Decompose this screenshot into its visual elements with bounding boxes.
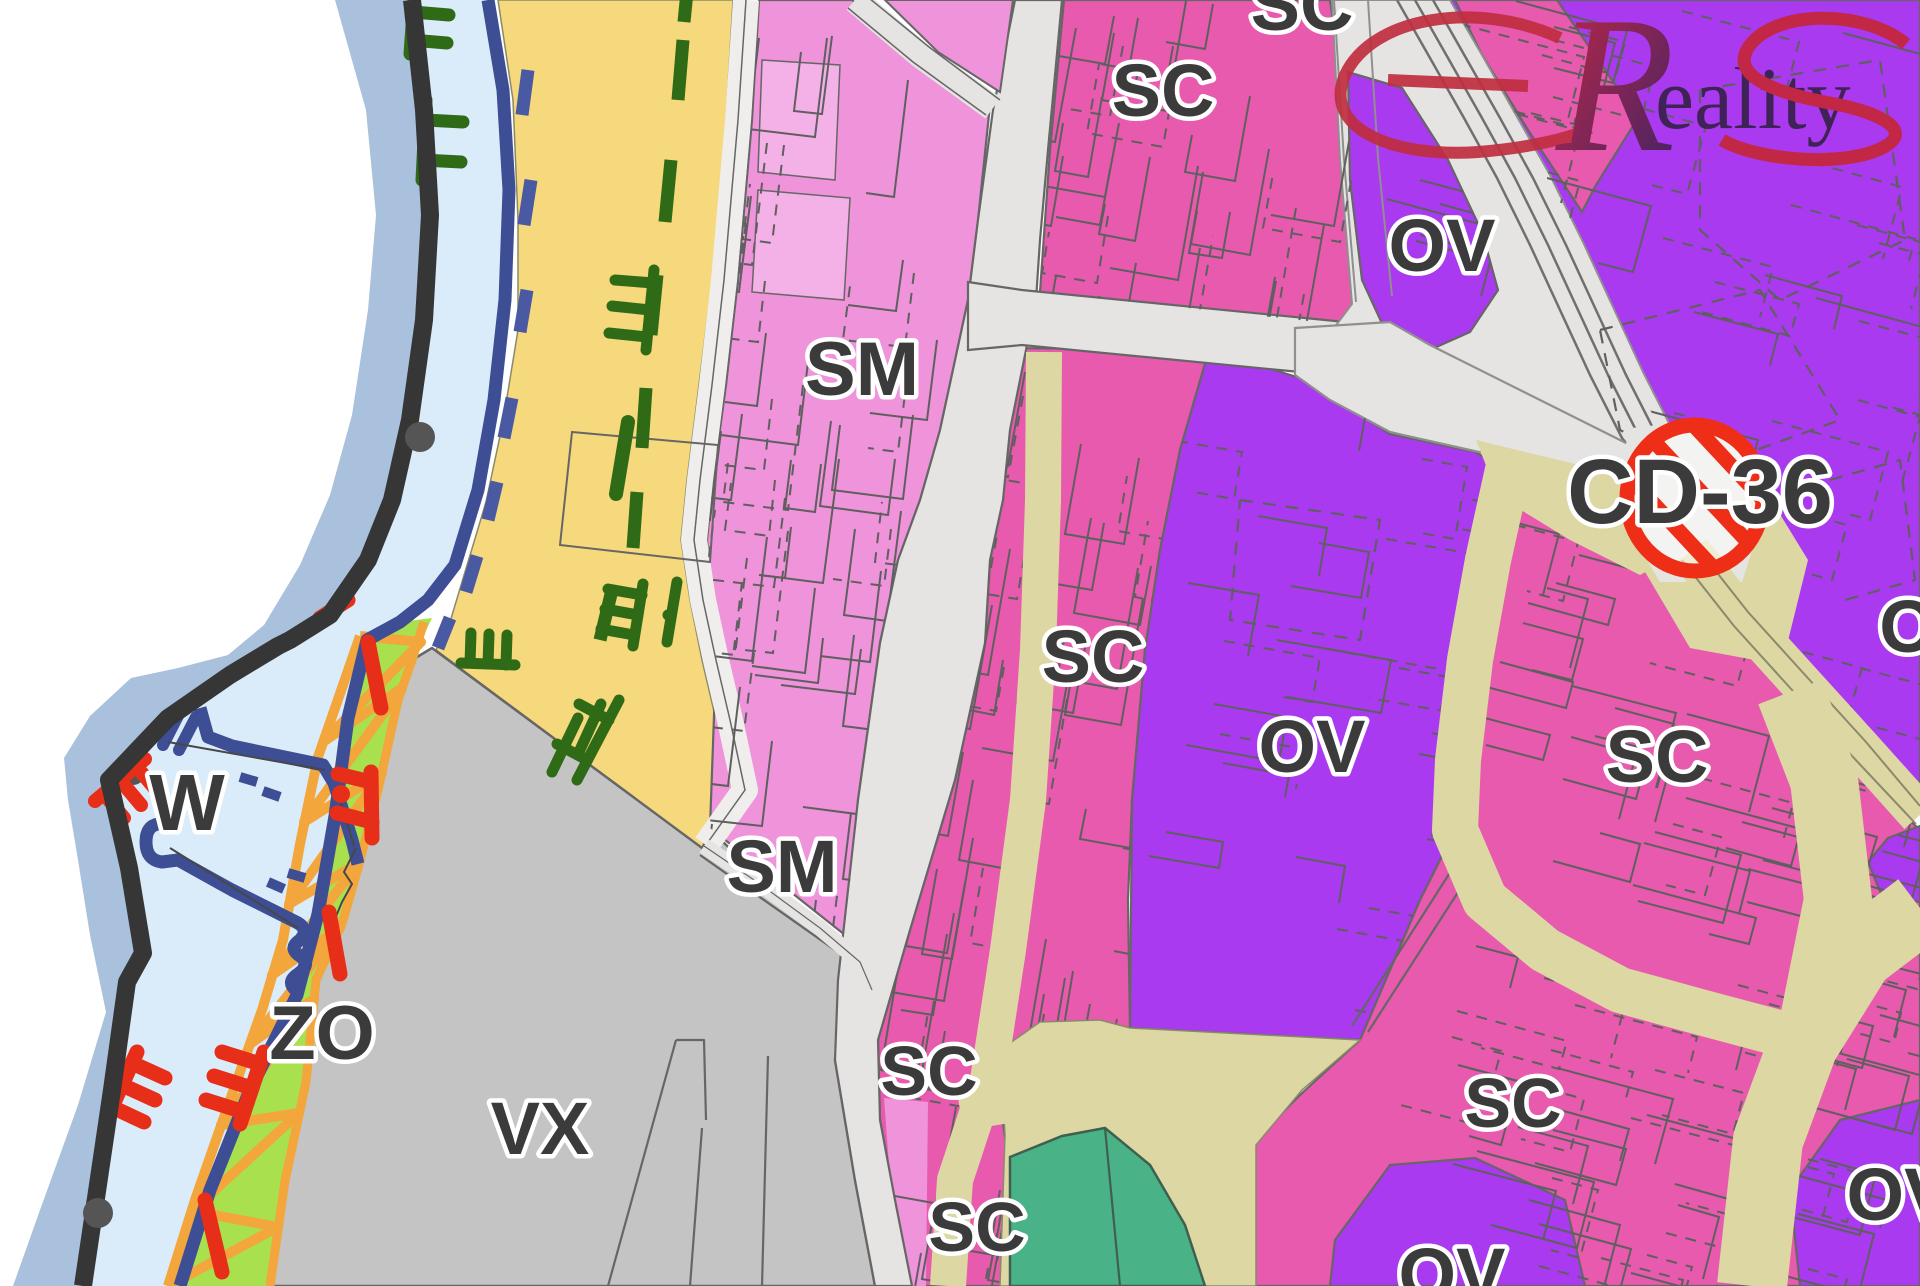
svg-text:CD-36: CD-36 [1567, 441, 1833, 543]
svg-text:OV: OV [1399, 1233, 1506, 1286]
svg-text:W: W [149, 758, 225, 847]
svg-text:SC: SC [928, 1188, 1025, 1266]
svg-text:SC: SC [1112, 49, 1215, 132]
svg-text:SM: SM [805, 327, 919, 412]
svg-text:VX: VX [491, 1087, 590, 1170]
svg-text:ZO: ZO [269, 991, 375, 1076]
svg-text:SC: SC [1042, 615, 1145, 698]
svg-text:SC: SC [1464, 1064, 1561, 1142]
svg-text:SC: SC [880, 1032, 977, 1110]
svg-text:SM: SM [727, 825, 838, 908]
svg-text:SC: SC [1606, 715, 1709, 798]
svg-text:OV: OV [1847, 1153, 1920, 1236]
svg-text:SC: SC [1251, 0, 1354, 46]
svg-text:OV: OV [1259, 705, 1366, 788]
svg-text:OV: OV [1389, 204, 1496, 287]
svg-text:O: O [1879, 585, 1920, 668]
